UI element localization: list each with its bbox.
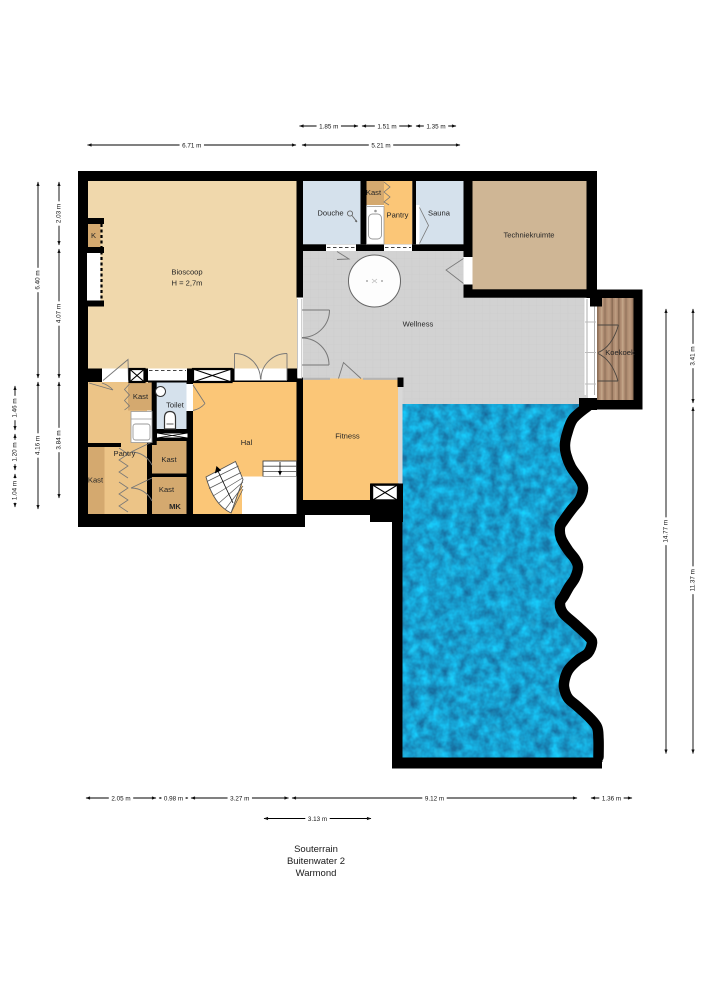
svg-text:Pantry: Pantry [114,449,136,458]
svg-text:1.46 m: 1.46 m [12,398,19,417]
svg-text:4.07 m: 4.07 m [56,304,63,323]
svg-text:Wellness: Wellness [403,320,434,329]
svg-text:1.36 m: 1.36 m [602,795,621,802]
svg-text:6.71 m: 6.71 m [182,142,201,149]
svg-text:Bioscoop: Bioscoop [171,268,202,277]
svg-text:1.04 m: 1.04 m [12,481,19,500]
svg-text:3.41 m: 3.41 m [690,346,697,365]
svg-text:3.13 m: 3.13 m [308,816,327,823]
svg-text:11.37 m: 11.37 m [690,569,697,591]
svg-text:Buitenwater 2: Buitenwater 2 [287,856,345,867]
svg-text:5.21 m: 5.21 m [371,142,390,149]
svg-text:1.85 m: 1.85 m [319,123,338,130]
svg-text:Kast: Kast [161,455,177,464]
svg-text:1.20 m: 1.20 m [12,442,19,461]
svg-text:H = 2,7m: H = 2,7m [171,279,202,288]
svg-text:2.03 m: 2.03 m [56,204,63,223]
svg-text:2.05 m: 2.05 m [111,795,130,802]
svg-text:Kast: Kast [88,476,104,485]
svg-text:Koekoek: Koekoek [605,348,635,357]
svg-text:K: K [91,231,96,240]
svg-text:9.12 m: 9.12 m [425,795,444,802]
svg-text:3.27 m: 3.27 m [230,795,249,802]
svg-text:3.84 m: 3.84 m [56,430,63,449]
svg-text:MK: MK [169,502,181,511]
svg-text:Douche: Douche [317,209,343,218]
svg-text:4.16 m: 4.16 m [35,436,42,455]
svg-text:1.51 m: 1.51 m [377,123,396,130]
svg-text:6.40 m: 6.40 m [35,270,42,289]
svg-text:Pantry: Pantry [387,211,409,220]
svg-text:Techniekruimte: Techniekruimte [503,231,554,240]
svg-text:Hal: Hal [241,438,253,447]
svg-text:14.77 m: 14.77 m [663,520,670,543]
svg-text:Kast: Kast [366,188,382,197]
svg-text:1.35 m: 1.35 m [426,123,445,130]
svg-text:Sauna: Sauna [428,209,451,218]
svg-text:Warmond: Warmond [296,868,337,879]
svg-text:Toilet: Toilet [166,401,185,410]
svg-text:Souterrain: Souterrain [294,844,338,855]
svg-text:0.98 m: 0.98 m [164,795,183,802]
svg-text:Kast: Kast [159,485,175,494]
svg-text:Kast: Kast [133,392,149,401]
svg-text:Fitness: Fitness [335,432,360,441]
